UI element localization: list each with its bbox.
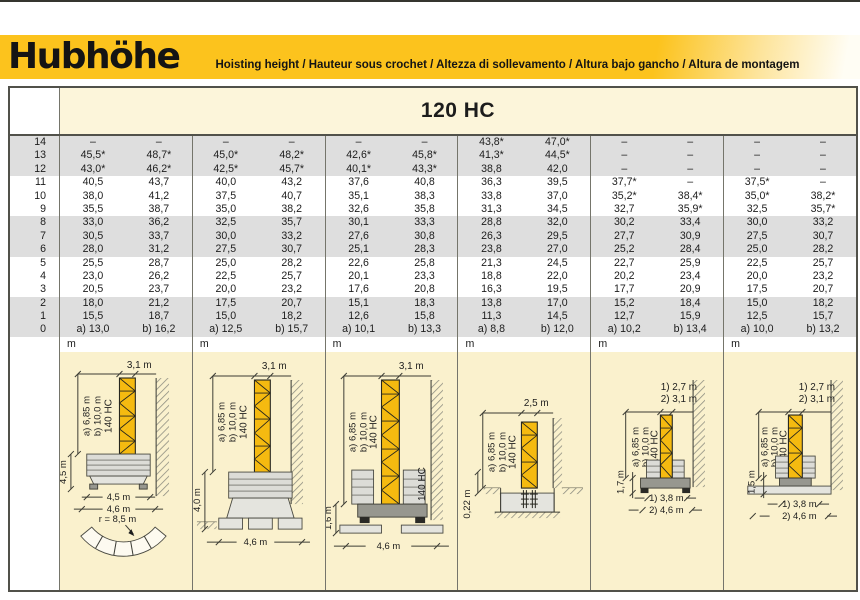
crane-diagram: 1) 2,7 m 2) 3,1 m a) 6,85 m b) 10,0 m 14… — [723, 352, 856, 590]
height-value: 25,5 — [60, 257, 126, 270]
height-value: 25,8 — [392, 257, 458, 270]
row-level: 5 — [10, 257, 59, 270]
height-cell: 40,1*43,3* — [325, 163, 458, 176]
height-cell: 18,822,0 — [457, 270, 590, 283]
height-value: – — [724, 163, 790, 176]
height-cell: 22,525,7 — [192, 270, 325, 283]
height-value: 41,3* — [458, 149, 524, 162]
wall-hatch — [291, 380, 303, 504]
height-value: 21,2 — [126, 297, 192, 310]
height-cell: 43,0*46,2* — [59, 163, 192, 176]
height-cell: 12,615,8 — [325, 310, 458, 323]
table-row: 935,538,735,038,232,635,831,334,532,735,… — [10, 203, 856, 216]
wall-hatch — [554, 418, 563, 488]
height-value: – — [591, 149, 657, 162]
height-value: 30,0 — [724, 216, 790, 229]
table-row: 730,533,730,033,227,630,826,329,527,730,… — [10, 230, 856, 243]
unit-row-stub — [10, 337, 59, 352]
height-value: 40,5 — [60, 176, 126, 189]
height-value: 32,0 — [524, 216, 590, 229]
diagram-strip: 3,1 m a) 6,85 m b) 10,0 m 140 HC 4,5 m 4… — [10, 352, 856, 590]
height-value: 17,6 — [326, 283, 392, 296]
dim-base-height: 0,22 m — [462, 489, 473, 518]
height-value: 40,8 — [392, 176, 458, 189]
height-value: 18,2 — [259, 310, 325, 323]
height-value: 23,7 — [126, 283, 192, 296]
height-value: 35,8 — [392, 203, 458, 216]
height-cell: 23,026,2 — [59, 270, 192, 283]
height-value: 30,2 — [591, 216, 657, 229]
height-value: 46,2* — [126, 163, 192, 176]
height-value: 43,0* — [60, 163, 126, 176]
height-value: 39,5 — [524, 176, 590, 189]
height-value: 43,8* — [458, 136, 524, 149]
unit-cell: m — [59, 337, 192, 352]
height-value: 38,3 — [392, 190, 458, 203]
height-cell: 42,5*45,7* — [192, 163, 325, 176]
row-level: 0 — [10, 323, 59, 336]
height-value: – — [657, 136, 723, 149]
height-value: 47,0* — [524, 136, 590, 149]
table-row: 1243,0*46,2*42,5*45,7*40,1*43,3*38,842,0… — [10, 163, 856, 176]
height-cell: 12,715,9 — [590, 310, 723, 323]
height-value: 13,8 — [458, 297, 524, 310]
height-value: 33,8 — [458, 190, 524, 203]
height-value: 20,0 — [193, 283, 259, 296]
height-cell: 30,133,3 — [325, 216, 458, 229]
dim-top-width: 3,1 m — [262, 361, 287, 372]
row-level: 9 — [10, 203, 59, 216]
height-value: – — [657, 149, 723, 162]
dim-base-width-2: 2) 4,6 m — [782, 511, 817, 522]
dim-overall-width: 4,6 m — [244, 537, 268, 548]
dim-base-width-1: 1) 3,8 m — [649, 493, 684, 504]
height-cell: 15,118,3 — [325, 297, 458, 310]
dim-base-height: 4,5 m — [60, 460, 69, 484]
height-value: 40,1* — [326, 163, 392, 176]
height-cell: 25,028,2 — [192, 257, 325, 270]
diagram-stub — [10, 352, 59, 590]
dim-top-width: 3,1 m — [399, 361, 424, 372]
row-level: 1 — [10, 310, 59, 323]
height-value: 37,6 — [326, 176, 392, 189]
height-cell: 15,018,2 — [723, 297, 856, 310]
height-value: 31,3 — [458, 203, 524, 216]
height-value: 27,6 — [326, 230, 392, 243]
unit-row: mmmmmm — [10, 337, 856, 352]
table-row: 423,026,222,525,720,123,318,822,020,223,… — [10, 270, 856, 283]
mast-type-label: 140 HC — [104, 399, 115, 433]
height-value: 20,7 — [259, 297, 325, 310]
unit-cell: m — [723, 337, 856, 352]
height-value: – — [392, 136, 458, 149]
height-value: 33,3 — [392, 216, 458, 229]
height-value: 27,0 — [524, 243, 590, 256]
height-value: 30,5 — [60, 230, 126, 243]
wall-hatch — [431, 380, 443, 520]
height-cell: 43,8*47,0* — [457, 136, 590, 149]
height-value: 40,0 — [193, 176, 259, 189]
slew-radius-label: r = 8,5 m — [99, 514, 137, 525]
height-value: 18,0 — [60, 297, 126, 310]
table-row: 525,528,725,028,222,625,821,324,522,725,… — [10, 257, 856, 270]
height-value: 42,0 — [524, 163, 590, 176]
row-level: 4 — [10, 270, 59, 283]
height-value: 27,7 — [591, 230, 657, 243]
height-cell: 35,138,3 — [325, 190, 458, 203]
height-value: 38,0 — [60, 190, 126, 203]
height-value: 35,0 — [193, 203, 259, 216]
table-row: 14––––––43,8*47,0*–––– — [10, 136, 856, 149]
height-cell: 35,0*38,2* — [723, 190, 856, 203]
height-value: 20,1 — [326, 270, 392, 283]
height-value: 25,0 — [193, 257, 259, 270]
height-value: 28,7 — [126, 257, 192, 270]
height-value: 12,6 — [326, 310, 392, 323]
height-cell: 15,018,2 — [192, 310, 325, 323]
height-value: 28,8 — [458, 216, 524, 229]
height-cell: 40,043,2 — [192, 176, 325, 189]
table-row: 1038,041,237,540,735,138,333,837,035,2*3… — [10, 190, 856, 203]
height-value: 18,4 — [657, 297, 723, 310]
height-value: 30,0 — [193, 230, 259, 243]
height-value: 16,3 — [458, 283, 524, 296]
height-value: 44,5* — [524, 149, 590, 162]
height-value: 20,7 — [790, 283, 856, 296]
dim-overall-width: 4,6 m — [376, 541, 400, 552]
height-value: 22,5 — [724, 257, 790, 270]
height-value: 38,2 — [259, 203, 325, 216]
slew-radius-arc — [81, 527, 166, 556]
dim-top-width-1: 1) 2,7 m — [799, 382, 835, 393]
table-row: 833,036,232,535,730,133,328,832,030,233,… — [10, 216, 856, 229]
height-value: 20,9 — [657, 283, 723, 296]
height-value: 38,2* — [790, 190, 856, 203]
height-value: 18,3 — [392, 297, 458, 310]
height-cell: 45,5*48,7* — [59, 149, 192, 162]
height-cell: –– — [723, 149, 856, 162]
dim-top-width-2: 2) 3,1 m — [661, 394, 697, 405]
height-cell: 17,520,7 — [723, 283, 856, 296]
height-cell: 22,525,7 — [723, 257, 856, 270]
height-value: 15,7 — [790, 310, 856, 323]
height-value: 22,6 — [326, 257, 392, 270]
height-value: 15,2 — [591, 297, 657, 310]
hoisting-height-table: 120 HC 14––––––43,8*47,0*––––1345,5*48,7… — [8, 86, 858, 592]
height-value: 28,4 — [657, 243, 723, 256]
unit-label: m — [731, 337, 740, 352]
dim-top-width: 3,1 m — [127, 360, 152, 371]
height-cell: 32,535,7 — [192, 216, 325, 229]
height-value: 35,1 — [326, 190, 392, 203]
row-level: 6 — [10, 243, 59, 256]
dim-base-height: 1,5 m — [747, 470, 758, 494]
height-value: 12,7 — [591, 310, 657, 323]
header-banner: Hubhöhe Hoisting height / Hauteur sous c… — [0, 35, 860, 79]
height-cell: 20,023,2 — [192, 283, 325, 296]
crane-diagram: 3,1 m a) 6,85 m b) 10,0 m 140 HC 140 HC … — [325, 352, 458, 590]
crane-diagram: 2,5 m a) 6,85 m b) 10,0 m 140 HC — [457, 352, 590, 590]
dim-base-width: 4,5 m — [107, 492, 131, 503]
height-cell: 30,033,2 — [192, 230, 325, 243]
crane-diagram-svg: 3,1 m a) 6,85 m b) 10,0 m 140 HC 4,0 m 4… — [193, 352, 325, 590]
height-cell: 36,339,5 — [457, 176, 590, 189]
height-cell: –– — [590, 149, 723, 162]
height-value: 12,5 — [724, 310, 790, 323]
height-value: 35,0* — [724, 190, 790, 203]
height-value: 33,4 — [657, 216, 723, 229]
height-cell: 17,620,8 — [325, 283, 458, 296]
height-cell: 25,128,3 — [325, 243, 458, 256]
height-value: 35,5 — [60, 203, 126, 216]
table-row: 628,031,227,530,725,128,323,827,025,228,… — [10, 243, 856, 256]
height-value: 45,8* — [392, 149, 458, 162]
height-cell: 35,538,7 — [59, 203, 192, 216]
height-cell: 33,036,2 — [59, 216, 192, 229]
height-value: – — [657, 176, 723, 189]
dim-top-width-1: 1) 2,7 m — [661, 382, 697, 393]
height-value: 40,7 — [259, 190, 325, 203]
height-cell: 40,543,7 — [59, 176, 192, 189]
foundation-block — [501, 493, 555, 512]
height-value: 26,3 — [458, 230, 524, 243]
crane-diagram-svg: 1) 2,7 m 2) 3,1 m a) 6,85 m b) 10,0 m 14… — [724, 352, 856, 590]
height-value: a) 10,0 — [724, 323, 790, 336]
dim-base-width-1: 1) 3,8 m — [782, 499, 817, 510]
height-value: 23,2 — [790, 270, 856, 283]
unit-label: m — [333, 337, 342, 352]
height-value: 15,0 — [724, 297, 790, 310]
unit-cell: m — [325, 337, 458, 352]
base-type-label: 140 HC — [417, 467, 428, 501]
height-value: 43,2 — [259, 176, 325, 189]
table-row: 115,518,715,018,212,615,811,314,512,715,… — [10, 310, 856, 323]
unit-label: m — [200, 337, 209, 352]
height-value: 19,5 — [524, 283, 590, 296]
height-cell: 37,7*– — [590, 176, 723, 189]
height-cell: 33,837,0 — [457, 190, 590, 203]
height-cell: 27,730,9 — [590, 230, 723, 243]
crane-diagram: 3,1 m a) 6,85 m b) 10,0 m 140 HC 4,5 m 4… — [59, 352, 192, 590]
height-cell: a) 10,0b) 13,2 — [723, 323, 856, 336]
height-value: 23,0 — [60, 270, 126, 283]
height-value: – — [790, 176, 856, 189]
height-value: 32,5 — [193, 216, 259, 229]
height-value: 45,7* — [259, 163, 325, 176]
height-value: 35,7* — [790, 203, 856, 216]
height-value: 31,2 — [126, 243, 192, 256]
dim-top-width: 2,5 m — [524, 398, 549, 409]
height-cell: 35,2*38,4* — [590, 190, 723, 203]
height-value: – — [790, 149, 856, 162]
height-value: 18,7 — [126, 310, 192, 323]
height-value: 33,2 — [790, 216, 856, 229]
height-cell: a) 10,1b) 13,3 — [325, 323, 458, 336]
table-row: 1345,5*48,7*45,0*48,2*42,6*45,8*41,3*44,… — [10, 149, 856, 162]
height-cell: –– — [325, 136, 458, 149]
dim-top-width-2: 2) 3,1 m — [799, 394, 835, 405]
height-cell: 20,523,7 — [59, 283, 192, 296]
height-cell: 28,832,0 — [457, 216, 590, 229]
height-value: 28,2 — [259, 257, 325, 270]
height-value: 32,6 — [326, 203, 392, 216]
dim-height-a: a) 6,85 m — [82, 396, 93, 436]
height-cell: a) 8,8b) 12,0 — [457, 323, 590, 336]
height-cell: 13,817,0 — [457, 297, 590, 310]
height-value: 17,5 — [193, 297, 259, 310]
table-row: 218,021,217,520,715,118,313,817,015,218,… — [10, 297, 856, 310]
height-value: – — [193, 136, 259, 149]
height-cell: –– — [192, 136, 325, 149]
height-cell: 27,630,8 — [325, 230, 458, 243]
height-value: 26,2 — [126, 270, 192, 283]
wall-hatch — [156, 378, 169, 496]
height-value: – — [591, 136, 657, 149]
height-cell: 27,530,7 — [723, 230, 856, 243]
ground-hatch-left — [484, 488, 501, 494]
dim-height-b: b) 10,0 m — [227, 402, 238, 442]
title-stub — [10, 88, 59, 134]
height-value: 21,3 — [458, 257, 524, 270]
height-cell: 25,028,2 — [723, 243, 856, 256]
height-value: – — [724, 149, 790, 162]
height-value: 42,5* — [193, 163, 259, 176]
height-value: a) 13,0 — [60, 323, 126, 336]
height-cell: 25,228,4 — [590, 243, 723, 256]
height-value: 15,1 — [326, 297, 392, 310]
height-value: 32,7 — [591, 203, 657, 216]
height-value: 20,5 — [60, 283, 126, 296]
height-value: b) 13,3 — [392, 323, 458, 336]
height-value: 20,0 — [724, 270, 790, 283]
dim-base-height: 1,6 m — [326, 506, 334, 530]
height-value: 43,7 — [126, 176, 192, 189]
height-value: 23,4 — [657, 270, 723, 283]
height-value: 45,5* — [60, 149, 126, 162]
height-value: 25,7 — [259, 270, 325, 283]
height-cell: 45,0*48,2* — [192, 149, 325, 162]
height-cell: 20,023,2 — [723, 270, 856, 283]
row-level: 12 — [10, 163, 59, 176]
height-value: a) 12,5 — [193, 323, 259, 336]
height-value: – — [790, 136, 856, 149]
ground-hatch-right — [563, 488, 584, 494]
height-value: 38,7 — [126, 203, 192, 216]
height-value: 20,2 — [591, 270, 657, 283]
row-level: 14 — [10, 136, 59, 149]
undercarriage — [357, 504, 426, 517]
height-cell: 38,842,0 — [457, 163, 590, 176]
row-level: 10 — [10, 190, 59, 203]
height-cell: –– — [590, 136, 723, 149]
height-value: 30,7 — [790, 230, 856, 243]
height-value: 20,8 — [392, 283, 458, 296]
mast-type-label: 140 HC — [368, 415, 379, 449]
undercarriage — [641, 478, 691, 488]
crane-diagram-svg: 1) 2,7 m 2) 3,1 m a) 6,85 m b) 10,0 m 14… — [591, 352, 723, 590]
height-cell: a) 10,2b) 13,4 — [590, 323, 723, 336]
height-cell: 11,314,5 — [457, 310, 590, 323]
height-value: – — [60, 136, 126, 149]
crane-diagram-svg: 3,1 m a) 6,85 m b) 10,0 m 140 HC 4,5 m 4… — [60, 352, 192, 590]
height-value: 48,2* — [259, 149, 325, 162]
page-title: Hubhöhe — [8, 35, 179, 79]
height-value: 45,0* — [193, 149, 259, 162]
height-cell: –– — [723, 136, 856, 149]
height-value: 23,3 — [392, 270, 458, 283]
mast-type-label: 140 HC — [238, 405, 249, 439]
height-cell: 30,033,2 — [723, 216, 856, 229]
height-value: 30,1 — [326, 216, 392, 229]
height-value: 37,5* — [724, 176, 790, 189]
height-value: – — [259, 136, 325, 149]
table-row: 320,523,720,023,217,620,816,319,517,720,… — [10, 283, 856, 296]
height-cell: 30,533,7 — [59, 230, 192, 243]
pit-hatch — [495, 512, 560, 518]
unit-label: m — [465, 337, 474, 352]
dim-base-height: 1,7 m — [616, 470, 627, 494]
page-top-rule — [0, 0, 860, 2]
height-cell: 37,5*– — [723, 176, 856, 189]
row-level: 13 — [10, 149, 59, 162]
height-value: – — [126, 136, 192, 149]
height-cell: 22,625,8 — [325, 257, 458, 270]
height-value: 38,8 — [458, 163, 524, 176]
height-value: 25,2 — [591, 243, 657, 256]
height-value: 17,7 — [591, 283, 657, 296]
height-cell: 12,515,7 — [723, 310, 856, 323]
table-row: 1140,543,740,043,237,640,836,339,537,7*–… — [10, 176, 856, 189]
height-value: 22,5 — [193, 270, 259, 283]
row-level: 7 — [10, 230, 59, 243]
height-value: 38,4* — [657, 190, 723, 203]
height-cell: 38,041,2 — [59, 190, 192, 203]
height-cell: 32,735,9* — [590, 203, 723, 216]
height-value: – — [724, 136, 790, 149]
height-value: 22,7 — [591, 257, 657, 270]
page-subtitle: Hoisting height / Hauteur sous crochet /… — [215, 59, 799, 71]
height-cell: 20,123,3 — [325, 270, 458, 283]
ground-hatch — [197, 522, 217, 529]
crane-diagram-svg: 2,5 m a) 6,85 m b) 10,0 m 140 HC — [458, 352, 590, 590]
row-level: 3 — [10, 283, 59, 296]
height-value: 35,2* — [591, 190, 657, 203]
height-cell: 31,334,5 — [457, 203, 590, 216]
height-value: b) 13,2 — [790, 323, 856, 336]
height-value: 37,7* — [591, 176, 657, 189]
unit-label: m — [598, 337, 607, 352]
table-rows: 14––––––43,8*47,0*––––1345,5*48,7*45,0*4… — [10, 136, 856, 337]
height-cell: 32,635,8 — [325, 203, 458, 216]
height-value: 25,1 — [326, 243, 392, 256]
height-cell: 15,518,7 — [59, 310, 192, 323]
height-cell: 20,223,4 — [590, 270, 723, 283]
height-cell: 18,021,2 — [59, 297, 192, 310]
row-level: 2 — [10, 297, 59, 310]
height-value: 41,2 — [126, 190, 192, 203]
height-value: 35,9* — [657, 203, 723, 216]
model-title: 120 HC — [59, 88, 856, 134]
height-value: 24,5 — [524, 257, 590, 270]
height-value: 33,2 — [259, 230, 325, 243]
dim-height-a: a) 6,85 m — [217, 402, 228, 442]
height-cell: 37,640,8 — [325, 176, 458, 189]
height-value: 23,2 — [259, 283, 325, 296]
model-title-band: 120 HC — [10, 88, 856, 136]
height-value: – — [790, 163, 856, 176]
height-cell: 32,535,7* — [723, 203, 856, 216]
height-value: 33,0 — [60, 216, 126, 229]
